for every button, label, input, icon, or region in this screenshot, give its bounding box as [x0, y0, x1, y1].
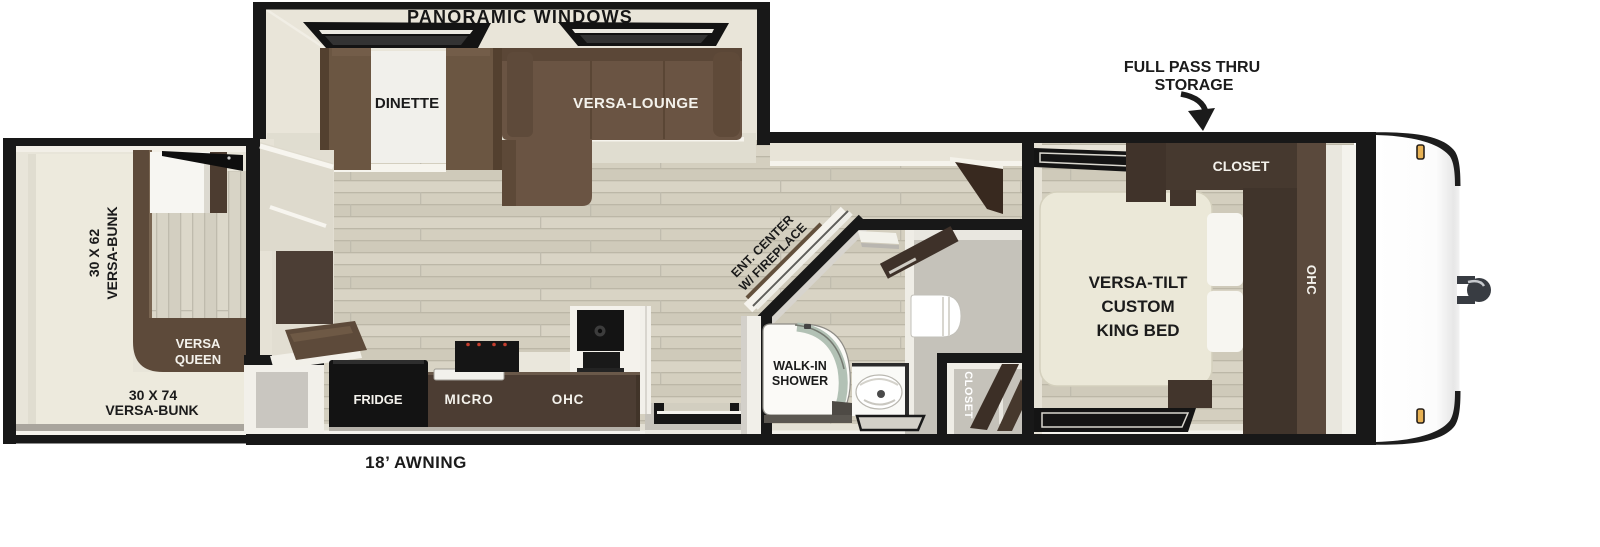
svg-text:VERSA-BUNK: VERSA-BUNK — [105, 402, 198, 418]
svg-text:VERSA-LOUNGE: VERSA-LOUNGE — [573, 95, 699, 112]
svg-text:18’ AWNING: 18’ AWNING — [365, 453, 467, 472]
svg-text:VERSA-BUNK: VERSA-BUNK — [104, 206, 120, 299]
svg-text:STORAGE: STORAGE — [1155, 77, 1234, 94]
svg-text:VERSA: VERSA — [176, 336, 221, 351]
svg-text:FRIDGE: FRIDGE — [353, 392, 402, 407]
svg-text:CUSTOM: CUSTOM — [1101, 297, 1174, 316]
svg-text:DINETTE: DINETTE — [375, 95, 439, 112]
svg-text:OHC: OHC — [552, 392, 584, 407]
svg-text:30 X 74: 30 X 74 — [129, 387, 177, 403]
svg-text:MICRO: MICRO — [445, 392, 494, 407]
svg-text:FULL PASS THRU: FULL PASS THRU — [1124, 59, 1260, 76]
svg-text:KING BED: KING BED — [1096, 321, 1179, 340]
svg-text:VERSA-TILT: VERSA-TILT — [1089, 273, 1188, 292]
svg-text:OHC: OHC — [1304, 265, 1319, 296]
svg-text:CLOSET: CLOSET — [1213, 158, 1270, 174]
svg-text:WALK-IN: WALK-IN — [773, 359, 826, 373]
svg-text:SHOWER: SHOWER — [772, 374, 828, 388]
svg-text:CLOSET: CLOSET — [962, 371, 974, 419]
svg-text:QUEEN: QUEEN — [175, 352, 221, 367]
svg-text:30 X 62: 30 X 62 — [86, 229, 102, 277]
